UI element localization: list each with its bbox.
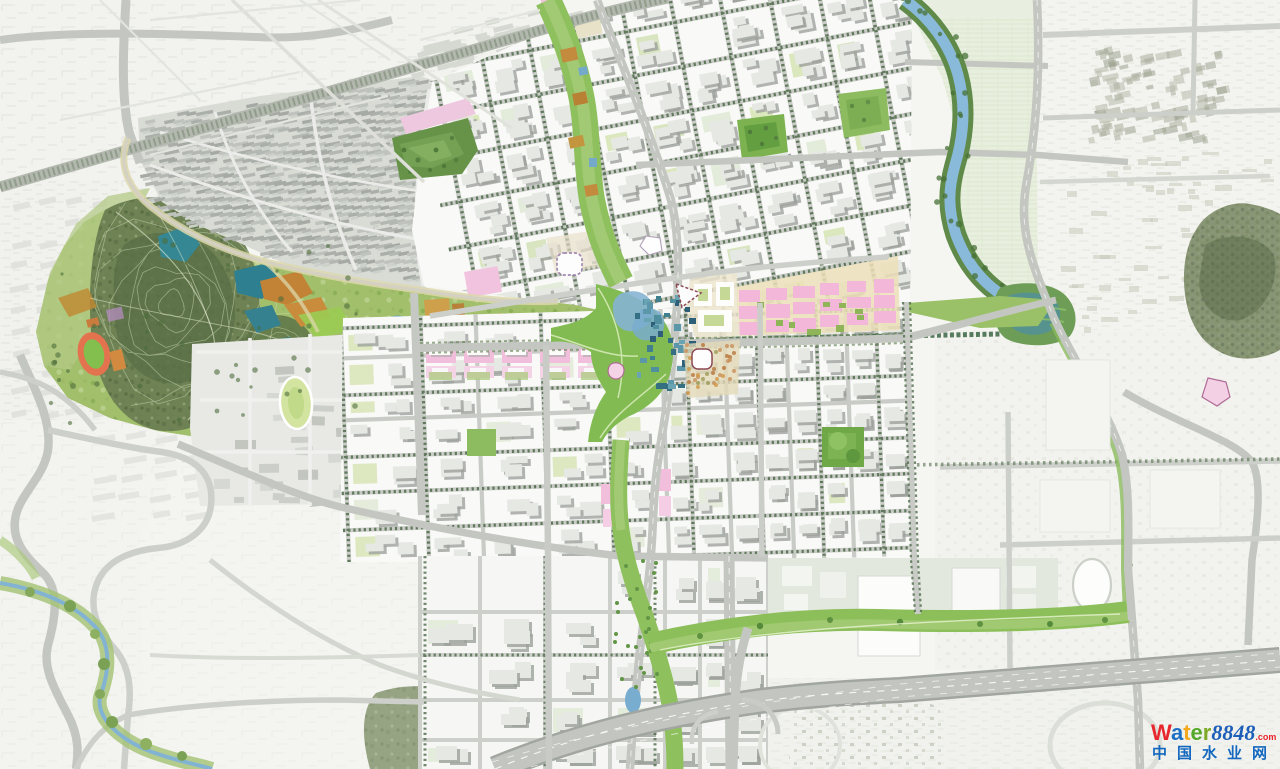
svg-text:中国水业网: 中国水业网 <box>1152 744 1277 762</box>
